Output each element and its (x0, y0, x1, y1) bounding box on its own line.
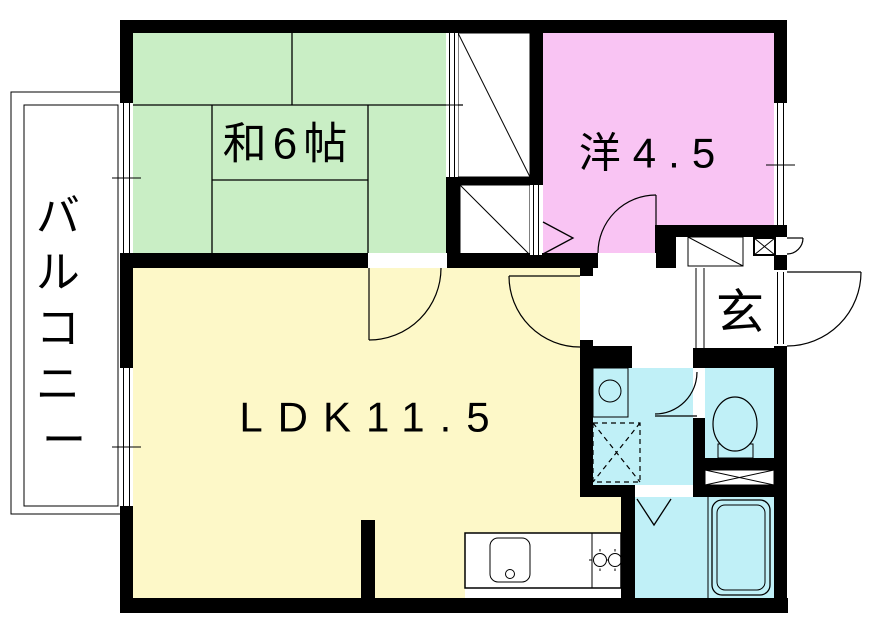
japanese-room-label: 和6帖 (223, 120, 353, 169)
pipe-space-box (754, 238, 775, 255)
wall-left-lower (120, 506, 133, 598)
entrance-step-line (696, 268, 704, 348)
washroom-floor (593, 368, 695, 485)
opening-ldk-hall (580, 276, 593, 340)
opening-hall-washroom (632, 346, 693, 368)
wall-left-upper (120, 33, 133, 103)
door-entrance (787, 272, 861, 346)
floor-plan: 和6帖 洋4.5 LDK11.5 玄 バ ル コ ニ ー (0, 0, 879, 624)
wall-hall-washroom (593, 346, 632, 368)
western-room-label: 洋4.5 (579, 130, 727, 177)
wall-bottom (120, 598, 788, 613)
opening-western-hall (598, 253, 656, 268)
opening-washroom-toilet (693, 368, 705, 418)
wall-shelf-bottom (693, 485, 774, 497)
entrance-label: 玄 (716, 287, 764, 340)
door-pipe-space (787, 238, 803, 254)
wall-toilet-bottom (693, 458, 774, 470)
wall-right-ps-bottom (774, 255, 787, 270)
bathroom-floor (635, 497, 774, 598)
wall-right-lower (774, 346, 787, 598)
wall-bath-left (621, 497, 635, 598)
ldk-label: LDK11.5 (239, 394, 504, 441)
kitchen-counter (465, 533, 626, 598)
wall-western-hall-post (655, 225, 676, 268)
closet-lower-diagonal (460, 185, 530, 255)
wall-right-ps-top (774, 225, 787, 237)
closet-lower-door-strip (530, 185, 542, 255)
wall-closet-divider (446, 177, 543, 185)
wall-closet-western (530, 33, 543, 177)
opening-washroom-bath (635, 485, 693, 497)
wall-left-middle (120, 253, 133, 368)
wall-closet-left (446, 185, 460, 268)
wall-ldk-stub (361, 520, 375, 598)
wall-japanese-ldk (133, 253, 368, 268)
floor-plan-canvas: 和6帖 洋4.5 LDK11.5 玄 バ ル コ ニ ー (0, 0, 879, 624)
opening-japanese-ldk (368, 253, 447, 268)
wall-right-upper (774, 33, 787, 103)
opening-entrance (774, 270, 787, 346)
closet-upper-diagonal (458, 33, 530, 177)
balcony-label: バ ル コ ニ ー (36, 192, 92, 465)
shelf-strip (705, 470, 774, 485)
shoe-cabinet-diagonal (688, 237, 743, 266)
wall-closet-ldk (447, 253, 598, 268)
wall-western-entrance (676, 225, 774, 237)
wall-entrance-toilet (693, 348, 774, 368)
wall-washroom-bath (580, 485, 635, 497)
wall-top (120, 20, 787, 33)
